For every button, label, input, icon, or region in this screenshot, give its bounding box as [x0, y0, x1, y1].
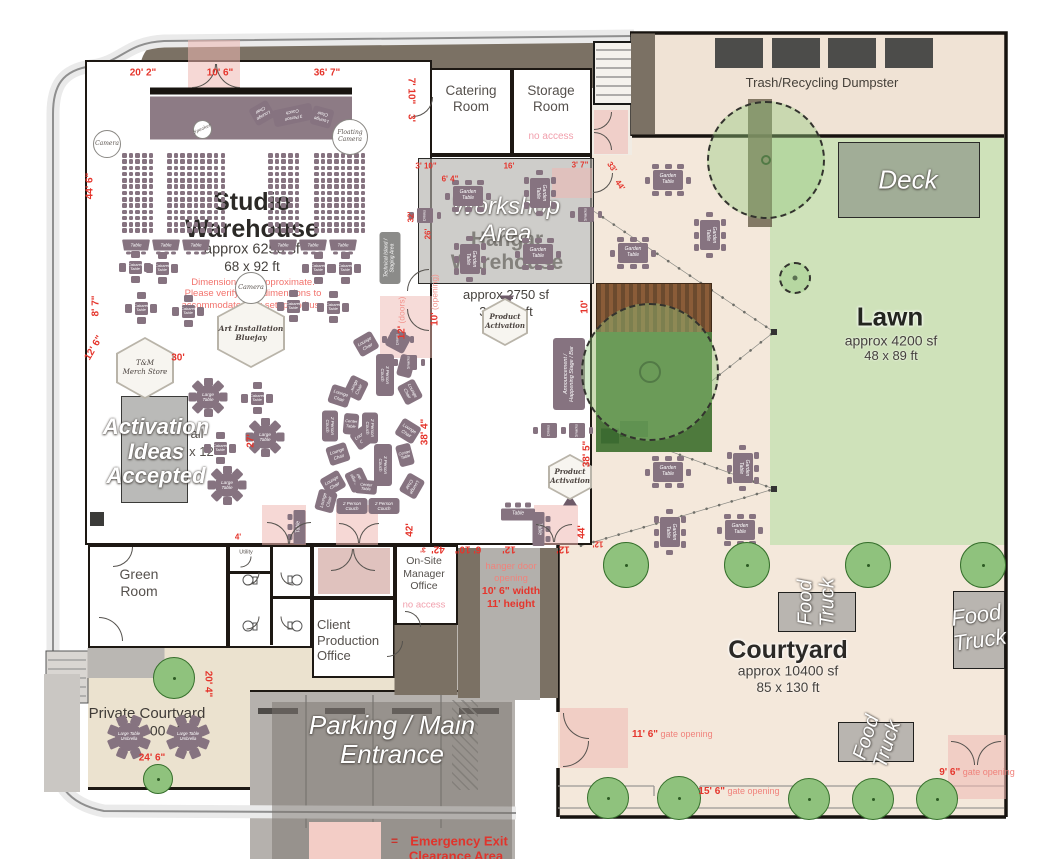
table-top [312, 262, 325, 275]
seat [187, 172, 192, 177]
seat [194, 159, 199, 164]
chair [505, 503, 511, 508]
table-top: Garden Table [660, 517, 680, 547]
chair [654, 541, 659, 548]
2-person-couch: 2 Person Couch [362, 413, 378, 444]
seat [200, 191, 205, 196]
seat [135, 166, 140, 171]
art-installation-label: Art Installation Bluejay [219, 324, 284, 343]
hangar-door-line2: opening [466, 573, 556, 585]
seat [142, 203, 147, 208]
chair [146, 264, 153, 273]
chair [277, 302, 284, 311]
seat [275, 178, 280, 183]
seat [187, 197, 192, 202]
seat [129, 203, 134, 208]
gate-9-6-label: 9' 6" gate opening [939, 762, 1015, 780]
seat [122, 191, 127, 196]
seat [180, 228, 185, 233]
chair [686, 177, 691, 184]
seat [122, 216, 127, 221]
seat [347, 184, 352, 189]
seat [129, 222, 134, 227]
furniture-label: Garden Table [453, 186, 483, 206]
seat [354, 178, 359, 183]
seat [207, 172, 212, 177]
chair [551, 177, 556, 184]
seat [288, 159, 293, 164]
seat [275, 197, 280, 202]
seat [180, 222, 185, 227]
chair [686, 469, 691, 476]
seat [122, 203, 127, 208]
gate-opening-text: gate opening [960, 767, 1015, 777]
seat [122, 159, 127, 164]
seat [327, 172, 332, 177]
seat [361, 178, 366, 183]
chair [465, 180, 472, 185]
chair [481, 243, 486, 250]
seat [194, 197, 199, 202]
chair [694, 219, 699, 226]
seat [167, 159, 172, 164]
chair [342, 303, 349, 312]
zone-rect [631, 34, 655, 135]
chair [467, 277, 474, 282]
seat [122, 153, 127, 158]
seat [288, 178, 293, 183]
chair [253, 382, 262, 389]
table-top: Drinks [541, 423, 557, 438]
chair [454, 268, 459, 275]
seat [288, 203, 293, 208]
furniture-label: Snacks [578, 206, 593, 222]
chair [314, 252, 323, 259]
chair [329, 264, 336, 273]
chair [740, 486, 747, 491]
cabaret-table: Cabaret Table [317, 291, 349, 323]
seat [221, 153, 226, 158]
garden-table: Garden Table [694, 212, 726, 258]
seat [327, 153, 332, 158]
chair [570, 211, 575, 218]
table-top: Garden Table [700, 220, 720, 250]
seat [207, 159, 212, 164]
seat [194, 178, 199, 183]
seat [347, 228, 352, 233]
chair [724, 514, 731, 519]
seat [221, 197, 226, 202]
seat [174, 210, 179, 215]
seat [221, 222, 226, 227]
chair [125, 304, 132, 313]
chair [547, 265, 554, 270]
chair [721, 244, 726, 251]
garden-table: Garden Table [717, 514, 763, 546]
chair [172, 307, 179, 316]
garden-table: Garden Table [727, 445, 759, 491]
seat [354, 228, 359, 233]
seat [142, 197, 147, 202]
seat [214, 210, 219, 215]
umbrella-table: Large Table Umbrella [164, 713, 212, 761]
seat [149, 172, 154, 177]
chair [137, 317, 146, 324]
furniture-label: Table [269, 240, 297, 251]
seat [149, 197, 154, 202]
seat [288, 222, 293, 227]
seat [268, 228, 273, 233]
seat [167, 172, 172, 177]
seat [221, 228, 226, 233]
seat [281, 197, 286, 202]
garden-table: Garden Table [610, 237, 656, 269]
garden-table: Garden Table [515, 238, 561, 270]
seat [334, 191, 339, 196]
seat [129, 191, 134, 196]
product-activation-label: Product Activation [550, 468, 590, 486]
seat [187, 228, 192, 233]
chair [667, 509, 674, 514]
seat [200, 216, 205, 221]
seat [341, 216, 346, 221]
chair [486, 193, 491, 200]
seat [361, 166, 366, 171]
furniture-label: Lounge Chair [352, 331, 380, 358]
chair [266, 394, 273, 403]
chair [652, 483, 659, 488]
seat [142, 166, 147, 171]
chair [204, 444, 211, 453]
seat [167, 197, 172, 202]
door-arc [247, 617, 260, 630]
seat [207, 153, 212, 158]
center-table: Center Table [395, 442, 415, 467]
zone-rect [772, 38, 820, 68]
table-top [287, 300, 300, 313]
furniture-label: Snacks [401, 354, 416, 370]
seat [327, 178, 332, 183]
seat [347, 197, 352, 202]
seat [334, 197, 339, 202]
seat [314, 159, 319, 164]
seat [214, 178, 219, 183]
chair [481, 268, 486, 275]
seat [268, 197, 273, 202]
table-top [174, 723, 202, 751]
snacks-table: Snacks [570, 206, 602, 222]
furniture-label: Garden Table [530, 178, 550, 208]
lounge-chair: Lounge Chair [352, 331, 380, 358]
seat [327, 166, 332, 171]
seat [135, 216, 140, 221]
seat [314, 222, 319, 227]
door-arc [113, 547, 133, 567]
seat [194, 172, 199, 177]
seat [122, 166, 127, 171]
seat [180, 178, 185, 183]
seat [167, 203, 172, 208]
seat [354, 166, 359, 171]
seat [187, 159, 192, 164]
seat [288, 228, 293, 233]
seat [321, 184, 326, 189]
seat [180, 159, 185, 164]
seat [135, 197, 140, 202]
seat [214, 172, 219, 177]
seat [281, 153, 286, 158]
seat [214, 222, 219, 227]
seat [221, 166, 226, 171]
chair [204, 409, 213, 417]
seat [275, 222, 280, 227]
seat [347, 159, 352, 164]
hangar-door-line1: hanger door [466, 561, 556, 573]
seat [122, 184, 127, 189]
seat [221, 159, 226, 164]
chair [409, 212, 414, 219]
tree-icon [153, 657, 195, 699]
chair [137, 292, 146, 299]
center-table: Center Table [354, 479, 377, 495]
chair [515, 503, 521, 508]
chair [724, 541, 731, 546]
seat [354, 216, 359, 221]
chair [642, 264, 649, 269]
seat [174, 216, 179, 221]
chair [717, 527, 722, 534]
table-top: Table [269, 240, 297, 251]
chair [410, 336, 415, 343]
gate-opening-text: gate opening [725, 786, 780, 796]
seat [347, 178, 352, 183]
seat [122, 197, 127, 202]
chair [654, 516, 659, 523]
seat [187, 191, 192, 196]
seat [268, 203, 273, 208]
seat [135, 222, 140, 227]
chair [645, 469, 650, 476]
seat [135, 203, 140, 208]
seat [194, 184, 199, 189]
chair [522, 238, 529, 243]
chair [465, 207, 472, 212]
seat [268, 172, 273, 177]
chair [119, 263, 126, 272]
seat [341, 222, 346, 227]
chair [546, 516, 551, 522]
table-top: Snacks [569, 423, 585, 438]
seat [295, 210, 300, 215]
furniture-label: 2 Person Couch [337, 498, 368, 514]
chair [652, 191, 659, 196]
seat [295, 222, 300, 227]
table-top: Table [122, 240, 150, 251]
seat [167, 153, 172, 158]
seat [361, 172, 366, 177]
seat [167, 184, 172, 189]
seat [268, 210, 273, 215]
seat [288, 191, 293, 196]
chair [630, 237, 637, 242]
seat [275, 153, 280, 158]
large-round-table: Large Table [187, 376, 229, 418]
chair [610, 250, 615, 257]
chair [681, 516, 686, 523]
seat [314, 166, 319, 171]
seat [295, 153, 300, 158]
seat [207, 210, 212, 215]
floating-camera-icon: Floating Camera [332, 119, 368, 155]
product-activation-label: Product Activation [485, 313, 525, 331]
chair [131, 276, 140, 283]
seat [214, 191, 219, 196]
seat [135, 153, 140, 158]
table-top [251, 392, 264, 405]
seat [207, 197, 212, 202]
seat [341, 210, 346, 215]
seat [347, 191, 352, 196]
seat [187, 203, 192, 208]
door-arc [405, 611, 421, 627]
chair [289, 315, 298, 322]
theater-seating-block [314, 153, 365, 233]
seat [207, 203, 212, 208]
seat [321, 210, 326, 215]
seat [268, 216, 273, 221]
seat [142, 153, 147, 158]
chair [186, 251, 191, 255]
seat [275, 228, 280, 233]
chair [665, 456, 672, 461]
furniture-label: Drinks [541, 422, 556, 438]
chair [302, 264, 309, 273]
seat [327, 210, 332, 215]
gate-opening-text: gate opening [658, 729, 713, 739]
seat [321, 166, 326, 171]
seat [167, 166, 172, 171]
seat [268, 222, 273, 227]
seat [347, 210, 352, 215]
seat [200, 228, 205, 233]
chair [445, 193, 450, 200]
chair [721, 219, 726, 226]
seat [268, 159, 273, 164]
table-top [215, 473, 239, 497]
furniture-label: 2 Person Couch [362, 413, 378, 444]
seat [187, 153, 192, 158]
lounge-chair: Lounge Chair [397, 378, 424, 405]
furniture-label: Snacks [569, 422, 584, 438]
chair [253, 407, 262, 414]
seat [221, 178, 226, 183]
seat [187, 184, 192, 189]
chair [651, 250, 656, 257]
seat [327, 222, 332, 227]
chair [437, 212, 442, 219]
seat [341, 159, 346, 164]
chair [694, 232, 699, 239]
table-trapezoid: Table [269, 240, 297, 255]
chair [329, 316, 338, 323]
seat [207, 178, 212, 183]
chair [537, 170, 544, 175]
chair [524, 190, 529, 197]
table-top: Garden Table [453, 186, 483, 206]
chair [454, 256, 459, 263]
merch-store-label: T&M Merch Store [123, 359, 168, 377]
table-top [156, 262, 169, 275]
chair [665, 164, 672, 169]
seat [321, 222, 326, 227]
chair [740, 445, 747, 450]
seat [327, 197, 332, 202]
seat [129, 178, 134, 183]
seat [341, 203, 346, 208]
chair [171, 264, 178, 273]
door-arc [281, 617, 294, 630]
chair [525, 503, 531, 508]
seat [142, 178, 147, 183]
seat [314, 203, 319, 208]
chair [551, 190, 556, 197]
chair [589, 427, 594, 434]
seat [314, 197, 319, 202]
theater-seating-block [122, 153, 153, 233]
seat [268, 191, 273, 196]
furniture-label: Table [329, 240, 357, 251]
chair [354, 264, 361, 273]
seat [354, 172, 359, 177]
seat [187, 216, 192, 221]
chair [131, 251, 140, 258]
seat [135, 210, 140, 215]
seat [194, 153, 199, 158]
seat [214, 203, 219, 208]
chair [454, 243, 459, 250]
seat [281, 178, 286, 183]
seat [200, 153, 205, 158]
seat [149, 203, 154, 208]
tree-icon [587, 777, 629, 819]
zone-rect [90, 512, 104, 526]
seat [167, 210, 172, 215]
chair [184, 320, 193, 327]
seat [334, 228, 339, 233]
seat [275, 184, 280, 189]
furniture-label: Garden Table [660, 517, 680, 547]
seat [142, 159, 147, 164]
seat [361, 191, 366, 196]
chair [522, 265, 529, 270]
chair [158, 252, 167, 259]
seat [200, 184, 205, 189]
3-person-couch: 3 Person Couch [374, 444, 392, 486]
table-top: Garden Table [618, 243, 648, 263]
seat [142, 210, 147, 215]
hangar-door-line3: 10' 6" width [466, 585, 556, 598]
seat [194, 191, 199, 196]
seat [281, 216, 286, 221]
seat [321, 178, 326, 183]
chair [239, 481, 247, 490]
zone-rect [828, 38, 876, 68]
hangar-door-note: hanger door opening 10' 6" width 11' hei… [466, 561, 556, 611]
seat [341, 184, 346, 189]
seat [214, 153, 219, 158]
snacks-table: Snacks [393, 354, 425, 370]
chair [681, 541, 686, 548]
